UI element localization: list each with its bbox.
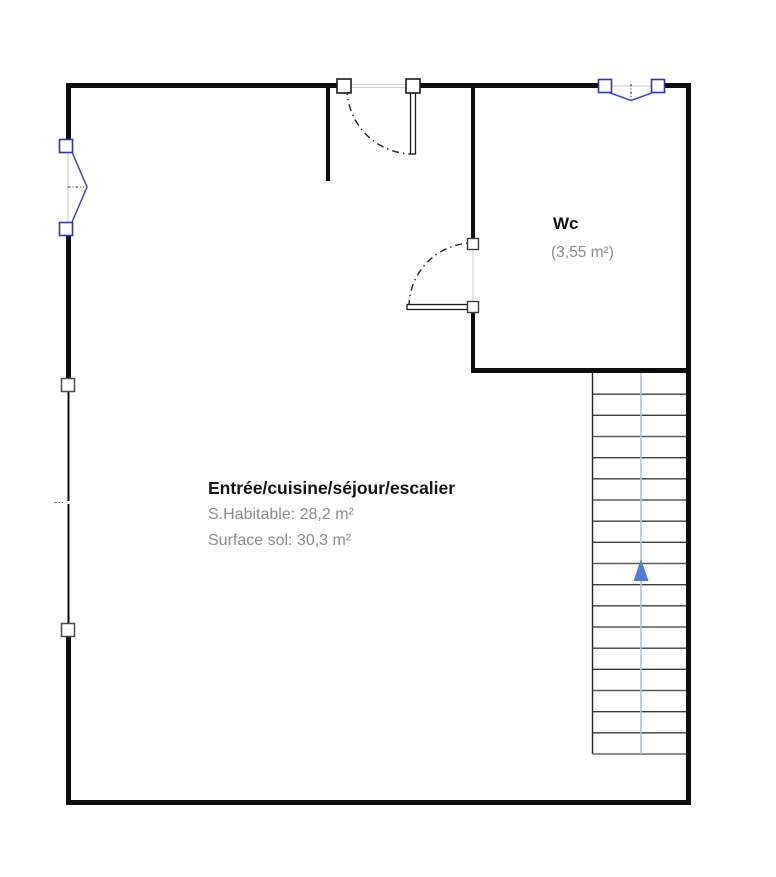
wall-openings [68, 85, 658, 308]
wc-door-square-bottom [468, 302, 479, 313]
wall-left-lower-segment [66, 626, 71, 805]
wc-room-area: (3,55 m²) [551, 244, 614, 261]
entrance-door-leaf [411, 93, 416, 154]
wall-left-thin-segment [68, 504, 70, 626]
left-window-square-bottom [60, 223, 73, 236]
wall-top-left-segment [66, 83, 344, 88]
wc-wall-left-lower [471, 307, 475, 372]
wc-wall-bottom [471, 368, 691, 373]
left-window-casement-lines [72, 152, 87, 222]
wall-left-upper-segment [66, 83, 71, 146]
wall-top-middle-segment [413, 83, 605, 88]
wc-door-leaf [407, 305, 468, 310]
staircase [593, 373, 687, 754]
door-leaves [407, 93, 468, 310]
main-room-floor-area: Surface sol: 30,3 m² [208, 532, 352, 549]
floorplan-drawing: Wc (3,55 m²) Entrée/cuisine/séjour/escal… [0, 0, 776, 877]
wall-right [686, 83, 691, 805]
left-wall-square-upper [62, 379, 75, 392]
top-window-square-right [652, 80, 665, 93]
main-room-name: Entrée/cuisine/séjour/escalier [208, 478, 455, 498]
windows [60, 80, 665, 236]
junction-squares [62, 79, 479, 637]
left-wall-square-lower [62, 624, 75, 637]
top-window-square-left [599, 80, 612, 93]
main-room-habitable-area: S.Habitable: 28,2 m² [208, 506, 355, 523]
wc-room-name: Wc [553, 214, 579, 233]
wc-door-arc [409, 243, 473, 307]
wall-left-mid-segment [66, 229, 71, 388]
walls [66, 83, 691, 805]
wc-wall-left-upper [471, 88, 475, 244]
floorplan-canvas: Wc (3,55 m²) Entrée/cuisine/séjour/escal… [0, 0, 776, 877]
wc-door-square-top [468, 239, 479, 250]
entrance-partition-stub [326, 88, 330, 181]
stair-up-arrow-icon [634, 559, 649, 581]
left-window-square-top [60, 140, 73, 153]
wall-bottom [66, 800, 691, 805]
wall-left-thin-segment [68, 388, 70, 501]
room-labels: Wc (3,55 m²) Entrée/cuisine/séjour/escal… [208, 214, 614, 549]
entrance-door-arc [347, 88, 413, 154]
entrance-door-square-right [406, 79, 420, 93]
entrance-door-square-left [337, 79, 351, 93]
